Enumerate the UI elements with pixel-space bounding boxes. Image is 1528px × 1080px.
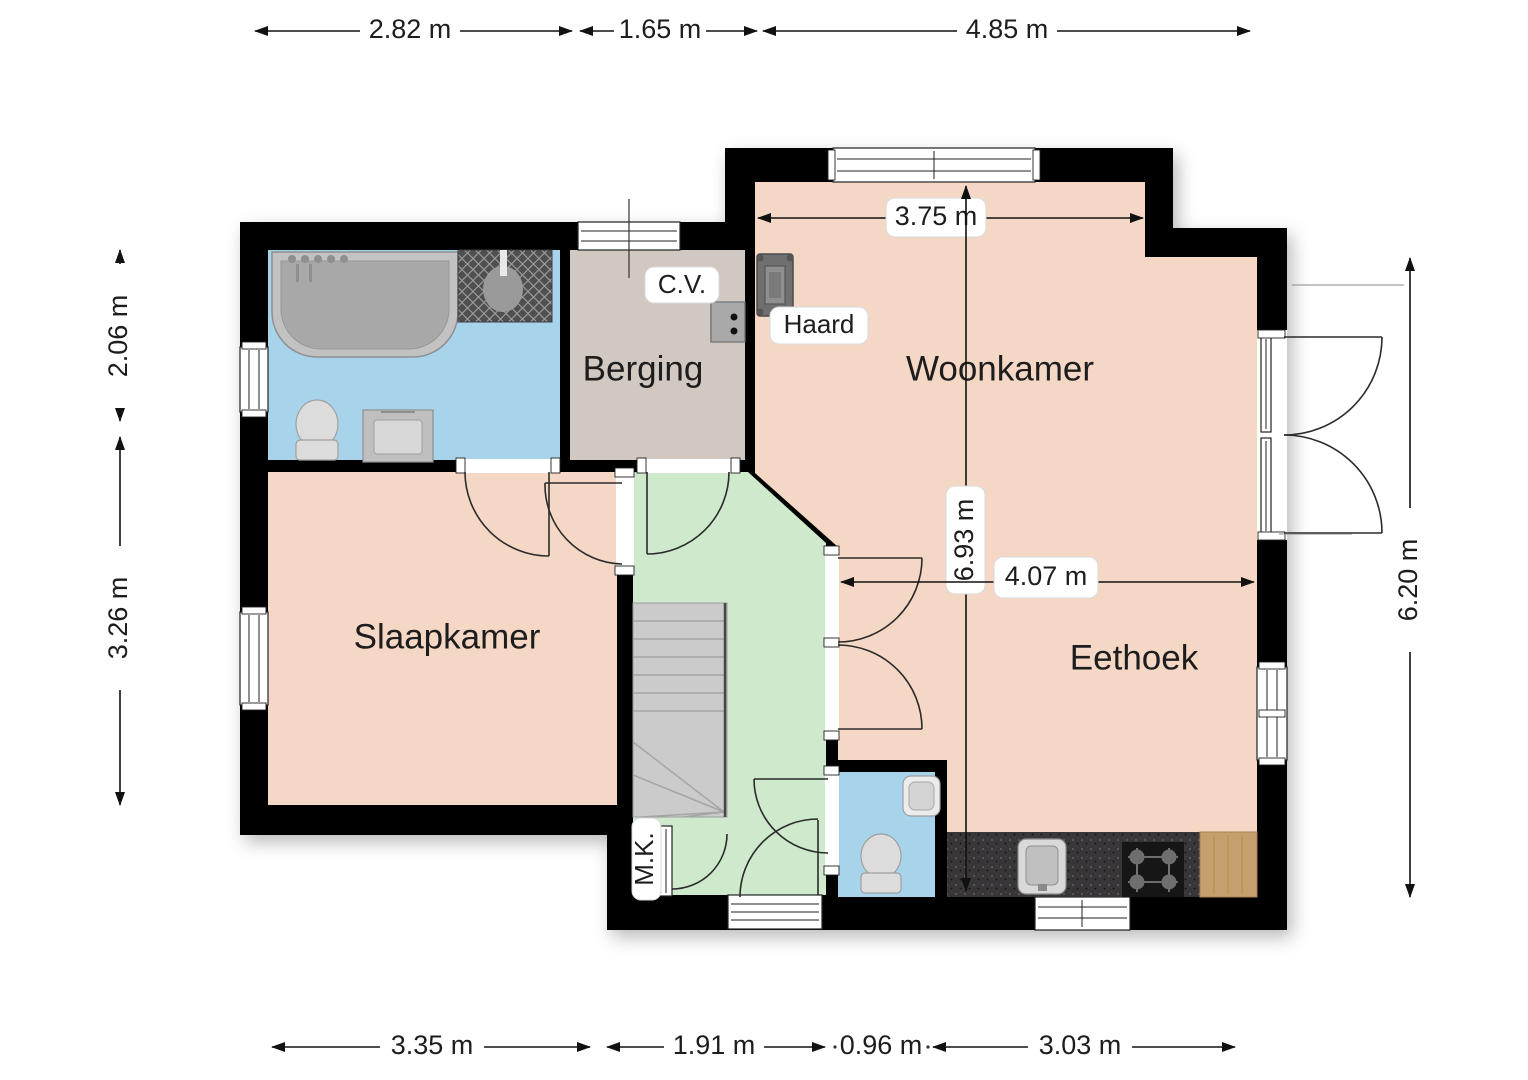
svg-text:M.K.: M.K. [629, 832, 659, 885]
dim-left-2: 3.26 m [103, 437, 136, 805]
floorplan-drawing: Woonkamer Eethoek Slaapkamer Berging C.V… [0, 0, 1528, 1080]
dim-top-2: 1.65 m [580, 14, 757, 46]
dim-bottom-1: 3.35 m [272, 1030, 590, 1062]
window-slaapkamer-left [240, 607, 268, 710]
label-slaapkamer: Slaapkamer [354, 617, 541, 656]
tag-mk: M.K. [629, 818, 661, 900]
stairs [633, 603, 727, 817]
svg-text:1.65 m: 1.65 m [619, 14, 702, 44]
french-doors [1257, 330, 1382, 540]
label-eethoek: Eethoek [1070, 638, 1199, 677]
svg-text:3.26 m: 3.26 m [103, 577, 133, 660]
wc-toilet-icon [861, 834, 901, 893]
dim-right-1: 6.20 m [1393, 258, 1426, 897]
dim-bottom-4: 3.03 m [933, 1030, 1235, 1062]
stove-icon [1122, 842, 1184, 897]
kitchen-counter [947, 832, 1257, 897]
dim-top-3: 4.85 m [763, 14, 1250, 46]
svg-text:2.82 m: 2.82 m [369, 14, 452, 44]
svg-text:3.35 m: 3.35 m [391, 1030, 474, 1060]
svg-text:6.93 m: 6.93 m [949, 499, 979, 582]
svg-text:3.03 m: 3.03 m [1039, 1030, 1122, 1060]
window-kitchen-bottom [1035, 897, 1130, 930]
kitchen-sink-icon [1018, 839, 1066, 894]
svg-text:C.V.: C.V. [658, 269, 706, 299]
tag-haard: Haard [770, 307, 868, 344]
svg-text:1.91 m: 1.91 m [673, 1030, 756, 1060]
svg-text:2.06 m: 2.06 m [103, 295, 133, 378]
dim-top-1: 2.82 m [255, 14, 572, 46]
svg-text:3.75 m: 3.75 m [895, 201, 978, 231]
svg-text:4.07 m: 4.07 m [1005, 561, 1088, 591]
window-woonkamer-top [828, 148, 1040, 182]
svg-text:Haard: Haard [784, 309, 855, 339]
svg-text:6.20 m: 6.20 m [1393, 539, 1423, 622]
shower-icon [458, 250, 552, 322]
svg-text:0.96 m: 0.96 m [840, 1030, 923, 1060]
label-woonkamer: Woonkamer [906, 349, 1094, 388]
floorplan-page: Woonkamer Eethoek Slaapkamer Berging C.V… [0, 0, 1528, 1080]
dim-left-1: 2.06 m [103, 250, 136, 421]
boiler-icon [711, 300, 745, 342]
window-bathroom-left [240, 342, 268, 417]
bathroom-toilet-icon [296, 400, 338, 460]
svg-text:4.85 m: 4.85 m [966, 14, 1049, 44]
bathroom-cabinet-icon [363, 410, 433, 462]
window-eethoek-right [1257, 662, 1287, 765]
bathtub-icon [272, 252, 458, 357]
dim-bottom-3: 0.96 m [833, 1030, 929, 1060]
tag-cv: C.V. [645, 267, 719, 303]
wc-sink-icon [903, 776, 940, 816]
label-berging: Berging [583, 349, 704, 388]
dim-bottom-2: 1.91 m [607, 1030, 825, 1062]
